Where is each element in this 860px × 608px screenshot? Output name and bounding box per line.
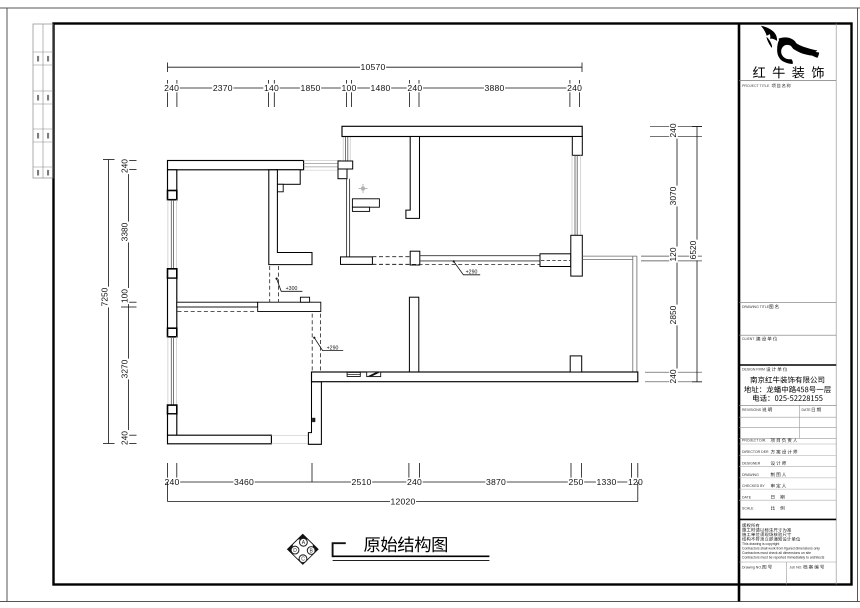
svg-text:240: 240 (165, 477, 180, 487)
svg-text:DESIGN FIRM: DESIGN FIRM (742, 368, 765, 372)
svg-text:10570: 10570 (361, 62, 386, 72)
svg-text:+290: +290 (327, 346, 339, 352)
svg-text:140: 140 (264, 83, 279, 93)
svg-text:240: 240 (120, 431, 130, 445)
svg-text:100: 100 (342, 83, 357, 93)
svg-text:3880: 3880 (485, 83, 505, 93)
svg-text:+290: +290 (466, 270, 478, 276)
svg-text:CLIENT: CLIENT (742, 337, 755, 341)
svg-text:D: D (293, 548, 297, 554)
svg-text:DATE: DATE (802, 408, 812, 412)
svg-text:Contractors shall work from fi: Contractors shall work from figured dime… (742, 547, 820, 551)
svg-text:+300: +300 (286, 286, 298, 292)
svg-text:Contractors must be reported i: Contractors must be reported immediately… (742, 556, 825, 560)
svg-text:1330: 1330 (597, 477, 617, 487)
svg-text:DRAWING: DRAWING (742, 473, 759, 477)
svg-text:240: 240 (407, 83, 422, 93)
svg-text:Job NO.: Job NO. (790, 565, 803, 569)
svg-text:240: 240 (567, 83, 582, 93)
svg-text:2510: 2510 (352, 477, 372, 487)
svg-text:1480: 1480 (371, 83, 391, 93)
svg-text:3070: 3070 (668, 186, 678, 205)
svg-text:DATE: DATE (742, 495, 752, 499)
svg-text:7250: 7250 (100, 287, 110, 306)
svg-text:240: 240 (668, 123, 678, 137)
svg-text:3870: 3870 (486, 477, 506, 487)
svg-text:120: 120 (668, 247, 678, 261)
svg-text:100: 100 (120, 289, 130, 303)
svg-text:CHECKED BY: CHECKED BY (742, 484, 765, 488)
svg-text:240: 240 (407, 477, 422, 487)
svg-text:DRAWING TITLE: DRAWING TITLE (742, 305, 770, 309)
svg-text:6520: 6520 (688, 240, 698, 259)
svg-text:PROJECT TITLE: PROJECT TITLE (742, 84, 770, 88)
svg-text:250: 250 (569, 477, 584, 487)
svg-text:This drawing is copyright: This drawing is copyright (742, 542, 779, 546)
svg-text:3380: 3380 (120, 222, 130, 241)
svg-text:1850: 1850 (301, 83, 321, 93)
svg-text:120: 120 (628, 477, 643, 487)
svg-text:240: 240 (668, 369, 678, 383)
svg-text:2370: 2370 (213, 83, 233, 93)
svg-text:C: C (301, 557, 305, 563)
svg-text:240: 240 (164, 83, 179, 93)
svg-text:3460: 3460 (234, 477, 254, 487)
svg-text:Contractors must check all dim: Contractors must check all dimensions on… (742, 551, 811, 555)
svg-text:PROJECT DIR.: PROJECT DIR. (742, 439, 766, 443)
svg-text:DIRECTOR DER: DIRECTOR DER (742, 450, 769, 454)
svg-text:240: 240 (120, 159, 130, 173)
svg-text:3270: 3270 (120, 359, 130, 378)
svg-text:DESIGNER: DESIGNER (742, 462, 761, 466)
svg-text:SCALE: SCALE (742, 506, 754, 510)
svg-text:Drawing NO.: Drawing NO. (742, 565, 762, 569)
svg-text:REVISIONS: REVISIONS (742, 408, 762, 412)
svg-text:12020: 12020 (391, 496, 416, 506)
svg-text:2850: 2850 (668, 305, 678, 324)
